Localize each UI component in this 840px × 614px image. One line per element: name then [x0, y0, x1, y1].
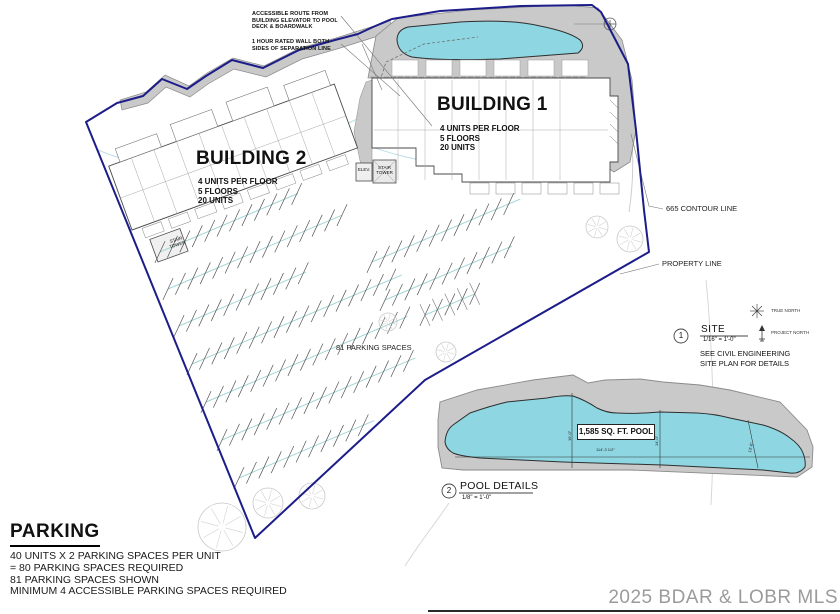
tree-branch — [620, 240, 628, 245]
parking-stall-line — [333, 425, 343, 447]
parking-stall-line — [271, 451, 281, 473]
parking-stall-line — [242, 204, 252, 226]
parking-stall-line — [491, 198, 501, 220]
balcony — [574, 183, 593, 194]
tree-branch — [224, 530, 233, 546]
roof-unit — [460, 60, 486, 76]
parking-stall-line — [324, 295, 334, 317]
parking-stall-line — [311, 300, 321, 322]
pool-callout-number: 2 — [443, 486, 455, 496]
parking-stall-line — [174, 315, 184, 337]
parking-stall-line — [200, 262, 210, 284]
parking-stall-line — [261, 321, 271, 343]
building-2-title: BUILDING 2 — [196, 149, 307, 170]
parking-stall-line — [249, 327, 259, 349]
note-accessible-route: ACCESSIBLE ROUTE FROM BUILDING ELEVATOR … — [252, 11, 354, 31]
tree-branch — [270, 496, 280, 502]
parking-stall-line — [246, 462, 256, 484]
parking-stall-line — [492, 242, 502, 264]
parking-stall-line — [362, 323, 372, 345]
parking-stall-line — [261, 278, 271, 300]
tree-branch — [438, 353, 444, 357]
parking-stall-line — [430, 268, 440, 290]
parking-stall-line — [479, 247, 489, 269]
parking-stall-line — [404, 235, 414, 257]
tree-branch — [314, 490, 322, 495]
parking-stall-line — [386, 269, 396, 291]
parking-stall-line — [299, 306, 309, 328]
parking-stall-line — [337, 204, 347, 226]
parking-stall-line — [379, 246, 389, 268]
parking-stall-line — [205, 220, 215, 242]
parking-stall-line — [341, 376, 351, 398]
tree-branch — [598, 228, 602, 235]
parking-stall-line — [286, 268, 296, 290]
building-1-title: BUILDING 1 — [437, 95, 548, 116]
parking-stall-line — [454, 214, 464, 236]
parking-stall-line — [400, 307, 410, 329]
parking-stall-line — [442, 263, 452, 285]
drive-aisle-line — [206, 316, 408, 402]
parking-stall-line — [192, 225, 202, 247]
site-callout-number: 1 — [675, 331, 687, 341]
parking-stall-line — [236, 289, 246, 311]
roof-unit — [562, 60, 588, 76]
true-north-label: TRUE NORTH — [771, 309, 800, 314]
parking-stall-line — [237, 246, 247, 268]
parking-stall-line — [229, 424, 239, 446]
parking-stall-line — [287, 225, 297, 247]
parking-stall-line — [346, 420, 356, 442]
balcony — [470, 183, 489, 194]
parking-stall-line — [262, 236, 272, 258]
tree-branch — [386, 323, 388, 330]
tree-branch — [594, 229, 596, 237]
parking-stall-line — [417, 273, 427, 295]
parking-stall-line — [454, 257, 464, 279]
parking-stall-line — [217, 215, 227, 237]
parking-stall-line — [417, 230, 427, 252]
parking-stall-line — [391, 355, 401, 377]
mls-watermark: 2025 BDAR & LOBR MLS — [608, 588, 838, 609]
site-plan-drawing — [0, 0, 840, 614]
balcony — [522, 183, 541, 194]
parking-stall-line — [380, 289, 390, 311]
building-2-specs: 4 UNITS PER FLOOR 5 FLOORS 20 UNITS — [198, 177, 278, 206]
tree-branch — [203, 529, 219, 538]
parking-stall-line — [312, 215, 322, 237]
parking-stall-line — [273, 273, 283, 295]
parking-stall-line — [163, 278, 173, 300]
tree-branch — [313, 498, 318, 506]
parking-stall-line — [467, 252, 477, 274]
parking-stall-line — [237, 332, 247, 354]
parking-stall-line — [188, 268, 198, 290]
parking-stall-line — [226, 381, 236, 403]
tree-branch — [592, 218, 596, 225]
tree-branch — [624, 229, 629, 237]
parking-stall-line — [225, 252, 235, 274]
note-rated-wall: 1 HOUR RATED WALL BOTH SIDES OF SEPARATI… — [252, 39, 354, 52]
site-callout-scale: 1/16" = 1'-0" — [703, 337, 736, 344]
parking-stall-line — [296, 441, 306, 463]
stair-tower-mid-label: STAIR TOWER — [373, 165, 396, 175]
parking-stall-line — [288, 354, 298, 376]
tree-branch — [587, 224, 595, 226]
parking-stall-line — [250, 241, 260, 263]
parking-stall-line — [242, 419, 252, 441]
parking-stall-line — [300, 220, 310, 242]
balcony — [496, 183, 515, 194]
contour-line-label: 665 CONTOUR LINE — [666, 205, 737, 213]
parking-stall-line — [392, 241, 402, 263]
parking-stall-line — [267, 408, 277, 430]
parking-stall-line — [238, 375, 248, 397]
tree-branch — [447, 348, 453, 352]
tree-branch — [446, 343, 448, 350]
parking-stall-line — [279, 188, 289, 210]
leader-contour — [631, 134, 663, 209]
building-1-balconies — [470, 183, 619, 194]
parking-stall-line — [366, 366, 376, 388]
parking-stall-line — [234, 467, 244, 489]
parking-stall-line — [175, 273, 185, 295]
parking-stall-line — [254, 413, 264, 435]
tree-branch — [313, 485, 316, 494]
true-north-icon — [750, 304, 764, 318]
parking-stall-line — [279, 403, 289, 425]
building-1-specs: 4 UNITS PER FLOOR 5 FLOORS 20 UNITS — [440, 124, 520, 153]
tree-branch — [588, 228, 595, 232]
tree-branch — [631, 228, 634, 237]
parking-stall-line — [229, 209, 239, 231]
parking-stall-line — [392, 284, 402, 306]
parking-stall-line — [348, 285, 358, 307]
drive-aisle-line — [222, 358, 415, 440]
pool-dim-left: 16'-0" — [568, 431, 572, 441]
tree-branch — [223, 506, 228, 523]
tree-branch — [631, 241, 636, 249]
parking-stall-line — [479, 204, 489, 226]
parking-stall-line — [361, 279, 371, 301]
parking-stall-line — [354, 371, 364, 393]
parking-stall-line — [275, 359, 285, 381]
tree-branch — [225, 516, 241, 525]
parking-stall-line — [466, 209, 476, 231]
drive-aisle-line — [239, 421, 374, 478]
tree-branch — [627, 241, 630, 250]
tree-branch — [269, 490, 272, 501]
parking-stall-line — [325, 338, 335, 360]
drive-aisle-line — [385, 246, 512, 300]
balcony — [548, 183, 567, 194]
parking-stall-line — [405, 279, 415, 301]
parking-stall-line — [504, 236, 514, 258]
parking-stall-line — [304, 392, 314, 414]
parking-stall-line — [298, 262, 308, 284]
parking-stall-line — [213, 257, 223, 279]
project-north-icon — [759, 325, 765, 341]
parking-stall-line — [373, 274, 383, 296]
tree-branch — [599, 227, 607, 229]
parking-stall-line — [313, 344, 323, 366]
parking-stall-line — [321, 430, 331, 452]
tree-branch — [261, 491, 267, 501]
parking-spaces-label: 81 PARKING SPACES — [336, 344, 412, 352]
pool-dim-bottom: 114'-3 1/2" — [596, 448, 615, 452]
tree-branch — [444, 353, 446, 360]
parking-stall-line — [316, 387, 326, 409]
tree-branch — [302, 497, 310, 502]
site-plan-sheet: ACCESSIBLE ROUTE FROM BUILDING ELEVATOR … — [0, 0, 840, 614]
parking-summary-title: PARKING — [10, 522, 100, 547]
parking-stall-line — [199, 348, 209, 370]
connector-walk — [354, 80, 372, 170]
site-callout-title: SITE — [701, 324, 725, 335]
tree-branch — [216, 530, 221, 547]
tree-branch — [265, 505, 268, 516]
parking-stall-line — [224, 337, 234, 359]
property-line-label: PROPERTY LINE — [662, 260, 722, 268]
parking-stall-line — [291, 397, 301, 419]
tree-canopy — [253, 488, 283, 518]
parking-stall-line — [259, 457, 269, 479]
tree-branch — [447, 352, 454, 354]
parking-stall-line — [224, 294, 234, 316]
pool-callout-title: POOL DETAILS — [460, 481, 538, 493]
tree-branch — [632, 233, 640, 238]
parking-stall-line — [329, 382, 339, 404]
tree-canopy — [198, 503, 246, 551]
parking-stall-line — [251, 370, 261, 392]
parking-stall-line — [324, 210, 334, 232]
parking-stall-line — [429, 225, 439, 247]
parking-stall-line — [286, 311, 296, 333]
parking-stall-line — [308, 435, 318, 457]
tree-branch — [437, 350, 444, 352]
elevator-label: ELEV. — [356, 168, 372, 173]
tree-branch — [597, 217, 599, 225]
roof-unit — [426, 60, 452, 76]
parking-stall-line — [248, 283, 258, 305]
site-callout-note: SEE CIVIL ENGINEERING SITE PLAN FOR DETA… — [700, 349, 790, 368]
parking-stall-line — [378, 361, 388, 383]
parking-stall-line — [441, 219, 451, 241]
pool-area-label: 1,585 SQ. FT. POOL — [577, 424, 655, 440]
contour — [405, 503, 449, 566]
parking-stall-line — [211, 299, 221, 321]
tree-canopy — [617, 226, 643, 252]
parking-stall-line — [336, 290, 346, 312]
tree-branch — [619, 236, 628, 239]
tree-branch — [314, 497, 323, 500]
parking-summary-notes: 40 UNITS X 2 PARKING SPACES PER UNIT = 8… — [10, 551, 287, 598]
tree-canopy — [299, 483, 325, 509]
project-north-label: PROJECT NORTH — [771, 331, 809, 336]
tree-branch — [255, 500, 266, 503]
tree-branch — [201, 521, 218, 526]
parking-stall-line — [274, 316, 284, 338]
tree-branch — [256, 504, 266, 510]
parking-stall-line — [403, 350, 413, 372]
tree-branch — [388, 314, 390, 321]
balcony — [600, 183, 619, 194]
tree-branch — [211, 508, 220, 524]
tree-canopy — [436, 342, 456, 362]
roof-unit — [494, 60, 520, 76]
tree-branch — [269, 505, 275, 515]
pool-callout-scale: 1/8" = 1'-0" — [462, 495, 491, 502]
tree-branch — [442, 344, 446, 350]
tree-canopy — [586, 216, 608, 238]
parking-stall-line — [504, 193, 514, 215]
parking-stall-line — [292, 183, 302, 205]
tree-branch — [447, 353, 451, 359]
parking-stall-line — [186, 310, 196, 332]
parking-stall-line — [213, 386, 223, 408]
roof-unit — [392, 60, 418, 76]
parking-stall-line — [212, 343, 222, 365]
parking-stall-line — [284, 446, 294, 468]
pool-dim-mid: 14'-0" — [655, 436, 659, 446]
parking-stall-line — [263, 365, 273, 387]
tree-branch — [598, 222, 605, 226]
tree-branch — [270, 504, 281, 507]
parking-stall-line — [275, 231, 285, 253]
tree-branch — [632, 240, 641, 243]
drive-aisle-line — [179, 272, 306, 326]
parking-stall-line — [300, 349, 310, 371]
parking-stall-line — [199, 305, 209, 327]
roof-unit — [528, 60, 554, 76]
tree-branch — [309, 498, 312, 507]
tree-branch — [225, 528, 242, 533]
parking-stall-line — [367, 251, 377, 273]
